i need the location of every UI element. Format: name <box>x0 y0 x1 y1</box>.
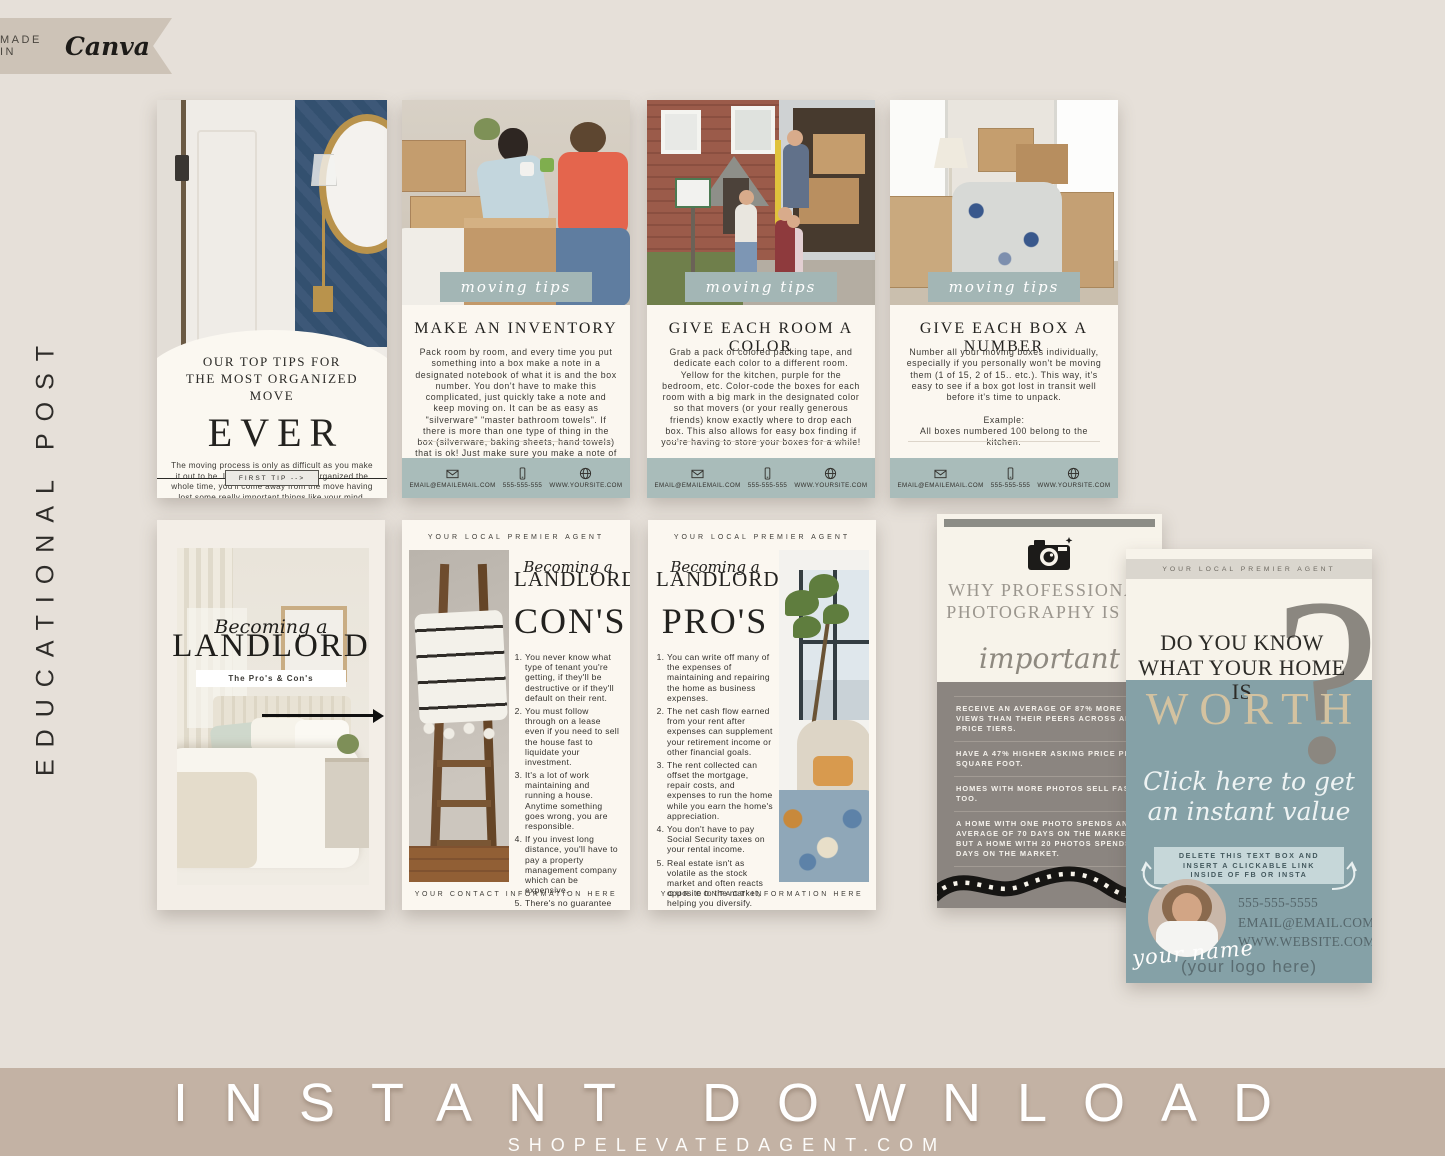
instant-download-title: INSTANT DOWNLOAD <box>0 1072 1445 1134</box>
divider-line <box>665 441 857 442</box>
cover-big-word: EVER <box>171 409 373 456</box>
list-item: You don't have to pay Social Security ta… <box>667 824 774 855</box>
contact-phone: 555-555-555 <box>748 467 788 489</box>
photo-shape <box>402 140 466 192</box>
photo-shape <box>787 130 803 146</box>
photo-shape <box>813 134 865 174</box>
photo-shape <box>337 734 359 754</box>
photography-title: WHY PROFESSIONAL PHOTOGRAPHY IS SO <box>945 580 1154 623</box>
photo-shape <box>409 846 509 882</box>
premier-agent-header: YOUR LOCAL PREMIER AGENT <box>402 534 630 541</box>
contact-email: EMAIL@EMAILEMAIL.COM <box>898 467 984 489</box>
worth-big-word: WORTH <box>1126 683 1372 735</box>
blanket-shape <box>414 610 508 724</box>
stat-item: RECEIVE AN AVERAGE OF 87% MORE VIEWS THA… <box>954 697 1152 742</box>
list-item: Real estate isn't as volatile as the sto… <box>667 858 774 909</box>
photo-shape <box>783 144 809 208</box>
landlord-pros-card: YOUR LOCAL PREMIER AGENT Becoming a LAND… <box>648 520 876 910</box>
home-worth-card: YOUR LOCAL PREMIER AGENT ? DO YOU KNOW W… <box>1126 549 1372 983</box>
note-line1: DELETE THIS TEXT BOX AND <box>1179 851 1319 860</box>
script-line1: Click here to get <box>1143 767 1355 796</box>
pros-cons-subtitle: The Pro's & Con's <box>196 670 346 687</box>
photo-shape <box>823 604 849 624</box>
cons-text-column: Becoming a LANDLORD CON'S You never know… <box>514 558 622 910</box>
photo-shape <box>775 220 795 278</box>
canva-logo: Canva <box>65 32 150 61</box>
camera-icon <box>1027 536 1073 572</box>
photo-shape <box>731 106 775 154</box>
photo-shape <box>181 100 186 347</box>
list-item: You can write off many of the expenses o… <box>667 652 774 703</box>
photo-shape <box>1016 144 1068 184</box>
right-arrow-icon <box>262 714 374 717</box>
list-item: There's no guarantee your investment wil… <box>525 898 622 910</box>
instant-download-banner: INSTANT DOWNLOAD SHOPELEVATEDAGENT.COM <box>0 1068 1445 1156</box>
photo-shape <box>793 616 821 638</box>
photo-shape <box>570 122 606 154</box>
pros-list: You can write off many of the expenses o… <box>656 652 774 909</box>
photo-shape <box>691 208 695 278</box>
list-item: The net cash flow earned from your rent … <box>667 706 774 757</box>
instant-value-script: Click here to get an instant value <box>1126 767 1372 827</box>
cons-list: You never know what type of tenant you'r… <box>514 652 622 910</box>
globe-icon <box>579 467 592 480</box>
agent-contact-block: 555-555-5555 EMAIL@EMAIL.COM WWW.WEBSITE… <box>1238 893 1368 952</box>
tip-body-main: Number all your moving boxes individuall… <box>907 347 1102 402</box>
globe-icon <box>824 467 837 480</box>
photo-shape <box>175 155 189 181</box>
tip-body-text: Grab a pack of colored packing tape, and… <box>660 347 862 448</box>
agent-website: WWW.WEBSITE.COM <box>1238 934 1372 949</box>
envelope-icon <box>446 467 459 480</box>
contact-strip: EMAIL@EMAILEMAIL.COM 555-555-555 WWW.YOU… <box>647 458 875 498</box>
cover-title: OUR TOP TIPS FOR THE MOST ORGANIZED MOVE <box>171 354 373 405</box>
phone-label: 555-555-555 <box>748 482 788 489</box>
made-in-canva-badge: MADE IN Canva <box>0 18 172 74</box>
photo-shape <box>558 152 628 236</box>
phone-icon <box>516 467 529 480</box>
envelope-icon <box>691 467 704 480</box>
ladder-photo <box>409 550 509 882</box>
photo-shape <box>813 756 853 786</box>
cover-title-line2: THE MOST ORGANIZED MOVE <box>186 371 358 403</box>
website-label: WWW.YOURSITE.COM <box>1037 482 1110 489</box>
phone-icon <box>1004 467 1017 480</box>
landlord-word: LANDLORD <box>656 567 774 592</box>
list-item: If you invest long distance, you'll have… <box>525 834 622 895</box>
example-label: Example: <box>983 415 1024 425</box>
organized-move-cover-card: OUR TOP TIPS FOR THE MOST ORGANIZED MOVE… <box>157 100 387 498</box>
worth-title-line1: DO YOU KNOW <box>1160 630 1324 655</box>
list-item: The rent collected can offset the mortga… <box>667 760 774 821</box>
stats-list: RECEIVE AN AVERAGE OF 87% MORE VIEWS THA… <box>954 696 1152 867</box>
photo-shape <box>474 118 500 140</box>
first-tip-row: FIRST TIP --> <box>157 470 387 486</box>
agent-email: EMAIL@EMAIL.COM <box>1238 915 1372 930</box>
list-item: It's a lot of work maintaining and runni… <box>525 770 622 831</box>
pros-heading: PRO'S <box>656 600 774 642</box>
contact-info-footer: YOUR CONTACT INFORMATION HERE <box>648 891 876 898</box>
note-line3: INSIDE OF FB OR INSTA <box>1191 870 1308 879</box>
photo-shape <box>809 574 839 598</box>
made-in-label: MADE IN <box>0 34 56 58</box>
email-label: EMAIL@EMAILEMAIL.COM <box>898 482 984 489</box>
sold-sign-shape <box>675 178 711 208</box>
moving-tips-banner: moving tips <box>928 272 1080 302</box>
divider-line <box>420 441 612 442</box>
sconce-plate-shape <box>313 286 333 312</box>
first-tip-button: FIRST TIP --> <box>225 470 319 486</box>
website-label: WWW.YOURSITE.COM <box>549 482 622 489</box>
landlord-word: LANDLORD <box>514 567 622 592</box>
moving-tips-banner: moving tips <box>440 272 592 302</box>
stat-item: HOMES WITH MORE PHOTOS SELL FASTER, TOO. <box>954 777 1152 812</box>
contact-strip: EMAIL@EMAILEMAIL.COM 555-555-555 WWW.YOU… <box>402 458 630 498</box>
agent-phone: 555-555-5555 <box>1238 895 1318 910</box>
landlord-cover-overlay: Becoming a LANDLORD The Pro's & Con's <box>157 616 385 687</box>
contact-website: WWW.YOURSITE.COM <box>549 467 622 489</box>
contact-phone: 555-555-555 <box>503 467 543 489</box>
landlord-word: LANDLORD <box>157 628 385 665</box>
premier-agent-header: YOUR LOCAL PREMIER AGENT <box>648 534 876 541</box>
sconce-shape <box>322 182 325 290</box>
patterned-armchair-shape <box>952 182 1062 278</box>
educational-post-label: EDUCATIONAL POST <box>32 334 61 776</box>
sconce-glass-shape <box>311 154 337 186</box>
email-label: EMAIL@EMAILEMAIL.COM <box>655 482 741 489</box>
photo-shape <box>520 162 534 176</box>
list-item: You must follow through on a lease even … <box>525 706 622 767</box>
website-label: WWW.YOURSITE.COM <box>794 482 867 489</box>
stat-item: HAVE A 47% HIGHER ASKING PRICE PER SQUAR… <box>954 742 1152 777</box>
moving-tips-banner: moving tips <box>685 272 837 302</box>
contact-info-footer: YOUR CONTACT INFORMATION HERE <box>402 891 630 898</box>
phone-icon <box>761 467 774 480</box>
pros-text-column: Becoming a LANDLORD PRO'S You can write … <box>656 558 774 910</box>
example-text: All boxes numbered 100 belong to the kit… <box>920 426 1088 447</box>
phone-label: 555-555-555 <box>991 482 1031 489</box>
contact-website: WWW.YOURSITE.COM <box>794 467 867 489</box>
list-item: You never know what type of tenant you'r… <box>525 652 622 703</box>
contact-website: WWW.YOURSITE.COM <box>1037 467 1110 489</box>
living-room-photo <box>779 550 869 882</box>
shop-site-url: SHOPELEVATEDAGENT.COM <box>0 1135 1445 1156</box>
photo-shape <box>661 110 701 154</box>
landlord-cons-card: YOUR LOCAL PREMIER AGENT Becoming a LAND… <box>402 520 630 910</box>
box-number-tip-card: moving tips GIVE EACH BOX A NUMBER Numbe… <box>890 100 1118 498</box>
rug-shape <box>779 790 869 882</box>
cover-title-line1: OUR TOP TIPS FOR <box>203 354 341 369</box>
contact-phone: 555-555-555 <box>991 467 1031 489</box>
room-color-tip-card: moving tips GIVE EACH ROOM A COLOR Grab … <box>647 100 875 498</box>
photo-shape <box>778 207 792 221</box>
contact-email: EMAIL@EMAILEMAIL.COM <box>410 467 496 489</box>
photo-shape <box>325 758 369 848</box>
script-line2: an instant value <box>1148 797 1351 826</box>
inventory-tip-card: moving tips MAKE AN INVENTORY Pack room … <box>402 100 630 498</box>
globe-icon <box>1067 467 1080 480</box>
cons-heading: CON'S <box>514 600 622 642</box>
contact-strip: EMAIL@EMAILEMAIL.COM 555-555-555 WWW.YOU… <box>890 458 1118 498</box>
email-label: EMAIL@EMAILEMAIL.COM <box>410 482 496 489</box>
contact-email: EMAIL@EMAILEMAIL.COM <box>655 467 741 489</box>
tip-body-text: Pack room by room, and every time you pu… <box>415 347 617 471</box>
photo-shape <box>437 760 491 767</box>
tip-heading: MAKE AN INVENTORY <box>402 320 630 338</box>
tip-body-text: Number all your moving boxes individuall… <box>903 347 1105 448</box>
phone-label: 555-555-555 <box>503 482 543 489</box>
divider-line <box>908 441 1100 442</box>
envelope-icon <box>934 467 947 480</box>
photo-shape <box>540 158 554 172</box>
top-bar <box>944 519 1155 527</box>
photo-shape <box>421 718 501 744</box>
photo-shape <box>437 800 491 807</box>
note-line2: INSERT A CLICKABLE LINK <box>1183 861 1315 870</box>
photo-shape <box>739 190 754 205</box>
photo-shape <box>177 772 257 868</box>
